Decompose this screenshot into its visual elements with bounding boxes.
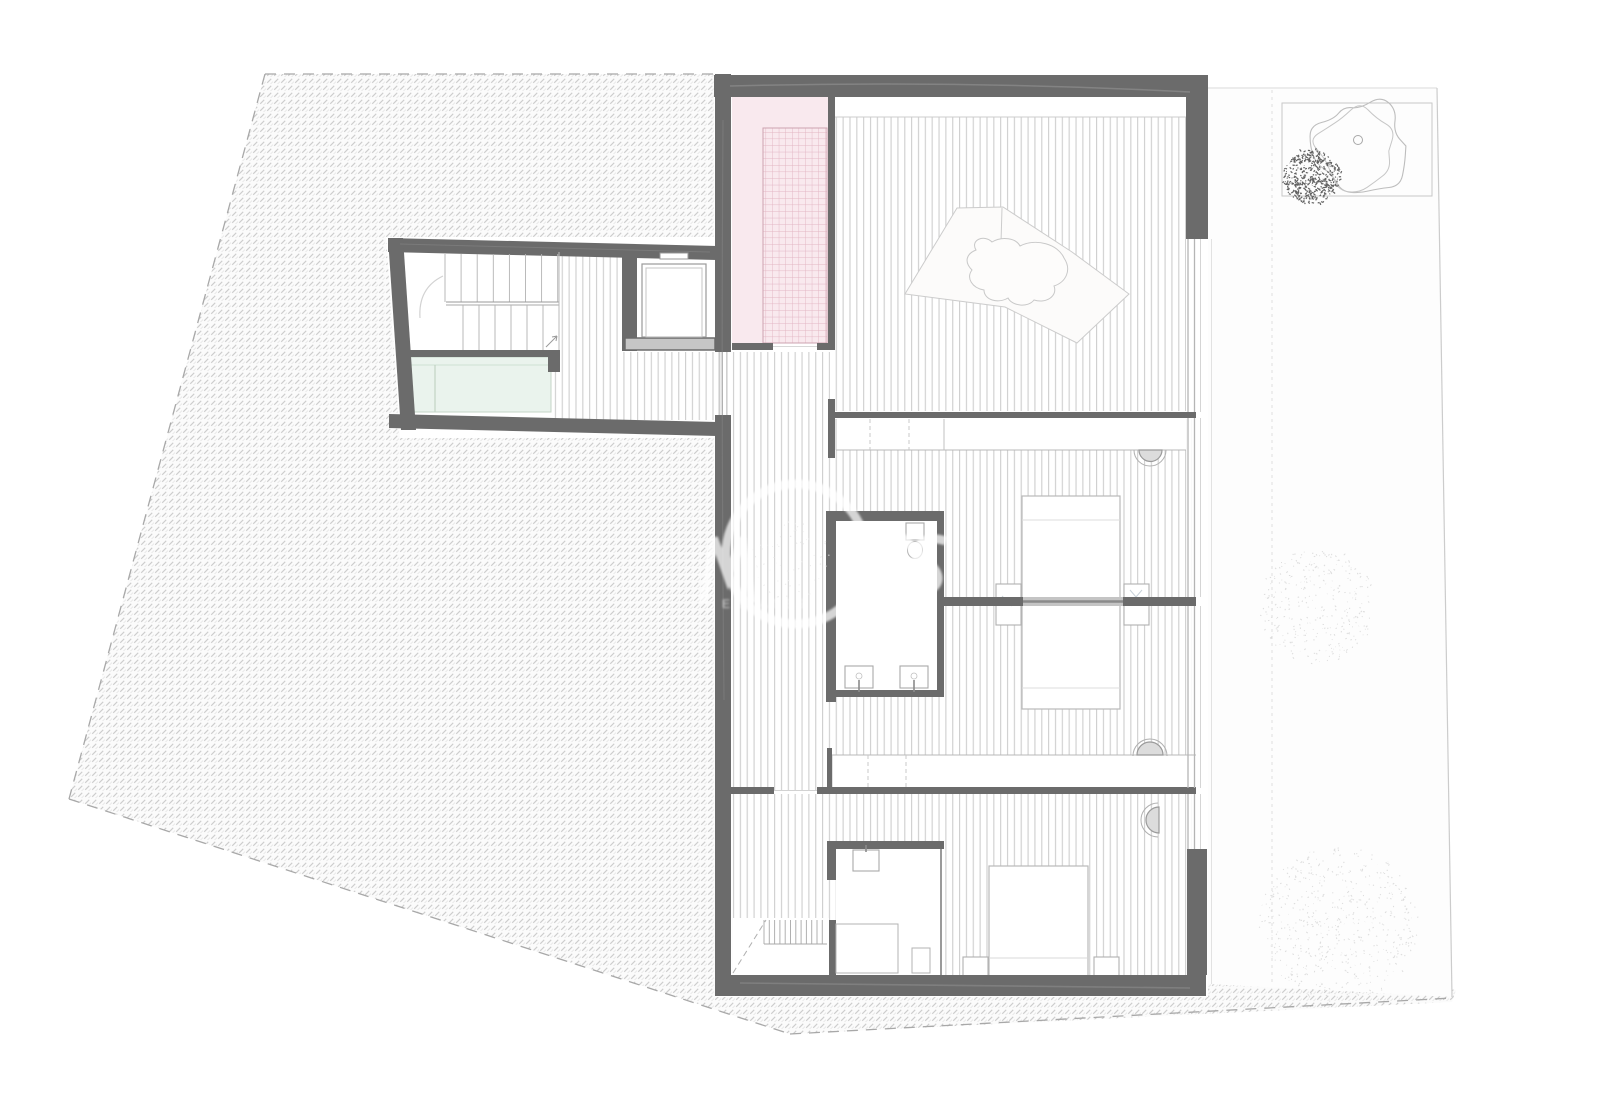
svg-text:ESTATES: ESTATES bbox=[722, 597, 810, 611]
